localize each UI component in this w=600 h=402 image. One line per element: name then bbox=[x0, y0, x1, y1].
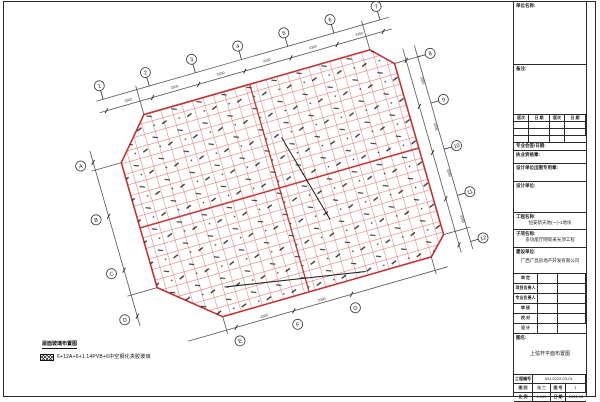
drawing-name-box: 图名: 上弦杆平面布置图 bbox=[514, 334, 586, 375]
drawing-name-value: 上弦杆平面布置图 bbox=[516, 352, 584, 358]
plan-title: 屋面玻璃布置图 bbox=[42, 341, 77, 349]
unit-label: 单位名称: bbox=[516, 3, 536, 8]
notes-box: 备注: bbox=[514, 65, 586, 115]
rev-cell bbox=[565, 129, 586, 136]
title-block: 单位名称: 备注: 版次 日 期 版次 日 期 专业会签/日期: 执业资格章: … bbox=[513, 1, 587, 397]
scale-value: 1:100 bbox=[533, 393, 551, 402]
rev-header: 日 期 bbox=[565, 115, 586, 122]
project-no-label: 工程编号 bbox=[514, 375, 533, 384]
svg-text:3300: 3300 bbox=[262, 58, 271, 64]
svg-text:3300: 3300 bbox=[170, 84, 179, 90]
drawing-name-label: 图名: bbox=[516, 335, 584, 341]
sign-row: 专业会签/日期: bbox=[514, 143, 586, 151]
rev-cell bbox=[529, 136, 550, 143]
sig-role: 设 计 bbox=[514, 324, 538, 334]
rev-header: 版次 bbox=[550, 115, 565, 122]
project-name-label: 工程名称: bbox=[516, 214, 536, 219]
glass-spec-text: 6+12A+6+1.14PVB+6中空钢化夹胶玻璃 bbox=[57, 354, 151, 361]
glass-legend: 6+12A+6+1.14PVB+6中空钢化夹胶玻璃 bbox=[40, 354, 151, 361]
sheet-no-label: 图 号 bbox=[551, 384, 566, 393]
subproject-value: 多功能厅网架采光顶工程 bbox=[516, 237, 584, 243]
svg-text:3300: 3300 bbox=[355, 31, 364, 37]
sig-cell bbox=[538, 274, 558, 284]
svg-text:3300: 3300 bbox=[433, 122, 439, 131]
notes-label: 备注: bbox=[516, 66, 527, 71]
sig-cell bbox=[558, 274, 586, 284]
registration-stamp-label: 执业资格章: bbox=[516, 152, 540, 157]
sheet-no-value: 1 bbox=[566, 384, 586, 393]
rev-cell bbox=[550, 129, 565, 136]
rev-cell bbox=[565, 122, 586, 129]
sig-cell bbox=[558, 294, 586, 304]
date-value: 2022.03 bbox=[566, 393, 586, 402]
svg-text:3300: 3300 bbox=[216, 71, 225, 77]
category-label: 图 别 bbox=[514, 384, 533, 393]
sig-cell bbox=[558, 314, 586, 324]
svg-text:3300: 3300 bbox=[446, 168, 452, 177]
sig-role: 项目负责人 bbox=[514, 284, 538, 294]
unit-stamp-box: 单位名称: bbox=[514, 2, 586, 65]
sig-cell bbox=[538, 284, 558, 294]
rev-header: 日 期 bbox=[529, 115, 550, 122]
client-box: 建设单位: 广西广昌房地产开发有限公司 bbox=[514, 248, 586, 274]
date-label: 日 期 bbox=[551, 393, 566, 402]
rev-cell bbox=[550, 136, 565, 143]
scale-label: 比 例 bbox=[514, 393, 533, 402]
sig-cell bbox=[558, 284, 586, 294]
rev-cell bbox=[514, 122, 529, 129]
subproject-label: 子项名称: bbox=[516, 231, 536, 236]
project-name-value: 恒安新天地(一)-1地块 bbox=[516, 220, 584, 226]
sig-cell bbox=[538, 304, 558, 314]
sign-row-label: 专业会签/日期: bbox=[516, 143, 546, 148]
rev-cell bbox=[514, 129, 529, 136]
revision-table: 版次 日 期 版次 日 期 bbox=[514, 115, 586, 143]
rev-cell bbox=[514, 136, 529, 143]
rev-cell bbox=[529, 122, 550, 129]
sig-role: 专业负责人 bbox=[514, 294, 538, 304]
sig-cell bbox=[538, 324, 558, 334]
svg-text:3300: 3300 bbox=[309, 44, 318, 50]
space-frame-grid bbox=[110, 44, 448, 332]
rev-header: 版次 bbox=[514, 115, 529, 122]
category-value: 施 工 bbox=[533, 384, 551, 393]
design-unit-box: 设计单位: bbox=[514, 182, 586, 213]
svg-text:3300: 3300 bbox=[124, 97, 133, 103]
rev-cell bbox=[550, 122, 565, 129]
svg-text:3300: 3300 bbox=[459, 215, 465, 224]
sig-cell bbox=[558, 324, 586, 334]
subproject-box: 子项名称: 多功能厅网架采光顶工程 bbox=[514, 230, 586, 248]
client-value: 广西广昌房地产开发有限公司 bbox=[516, 258, 584, 264]
client-label: 建设单位: bbox=[516, 249, 536, 254]
svg-text:3300: 3300 bbox=[419, 76, 425, 85]
sig-cell bbox=[538, 294, 558, 304]
sig-role: 审 定 bbox=[514, 274, 538, 284]
signature-table: 审 定 项目负责人 专业负责人 审 核 校 对 设 计 bbox=[514, 274, 586, 334]
roof-plan-drawing: 3300 3300 3300 3300 3300 3300 1 2 3 4 bbox=[0, 0, 600, 400]
sig-role: 审 核 bbox=[514, 304, 538, 314]
design-unit-label: 设计单位: bbox=[516, 183, 536, 188]
sig-role: 校 对 bbox=[514, 314, 538, 324]
issue-stamp-label: 设计单位出图专用章: bbox=[516, 165, 558, 170]
glass-hatch-swatch-icon bbox=[40, 354, 54, 361]
project-no-value: WJ-2022-03-01 bbox=[533, 375, 586, 384]
registration-stamp-box: 执业资格章: bbox=[514, 151, 586, 164]
axis-bubbles-left: A B C D bbox=[74, 160, 130, 326]
project-name-box: 工程名称: 恒安新天地(一)-1地块 bbox=[514, 213, 586, 230]
info-table: 工程编号 WJ-2022-03-01 图 别 施 工 图 号 1 比 例 1:1… bbox=[514, 375, 586, 402]
sig-cell bbox=[538, 314, 558, 324]
rev-cell bbox=[565, 136, 586, 143]
cad-sheet: { "title_block": { "unit_label": "单位名称:"… bbox=[0, 0, 600, 400]
issue-stamp-box: 设计单位出图专用章: bbox=[514, 164, 586, 182]
rev-cell bbox=[529, 129, 550, 136]
sig-cell bbox=[558, 304, 586, 314]
